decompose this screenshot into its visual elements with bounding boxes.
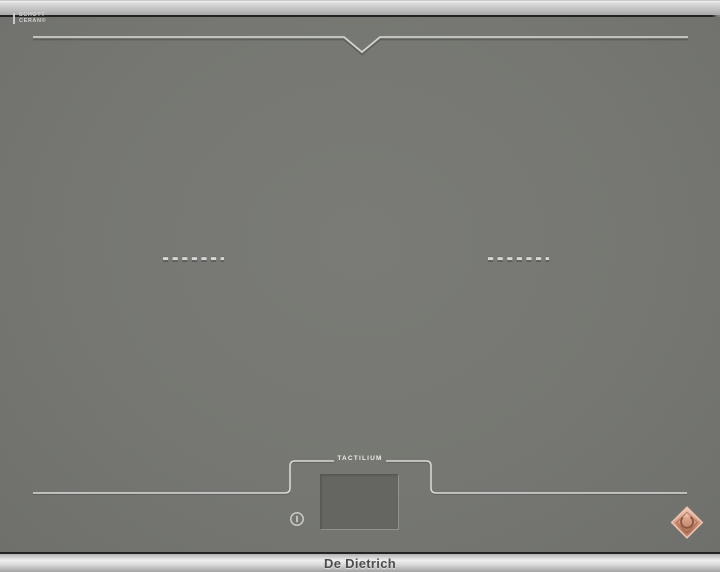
control-display[interactable]	[320, 474, 398, 529]
schott-logo-bar	[13, 13, 15, 24]
top-trim-line	[33, 37, 688, 55]
induction-hob-product-image: SCHOTT CERAN®	[0, 0, 720, 572]
schott-logo-text: SCHOTT CERAN®	[19, 13, 46, 25]
cooking-zone-marker-right	[488, 259, 549, 260]
frame-top-trim	[0, 0, 720, 17]
cooking-zone-marker-left	[163, 259, 224, 260]
glass-surface: SCHOTT CERAN®	[0, 17, 720, 552]
power-icon[interactable]	[287, 509, 307, 529]
frame-bottom-trim: De Dietrich	[0, 552, 720, 572]
glass-line-art	[0, 17, 720, 552]
control-panel-label: TACTILIUM	[300, 455, 420, 462]
brand-logo: De Dietrich	[324, 556, 396, 571]
schott-logo-line2: CERAN®	[19, 19, 46, 25]
schott-ceran-logo: SCHOTT CERAN®	[13, 13, 46, 25]
de-dietrich-diamond-logo	[672, 507, 702, 537]
